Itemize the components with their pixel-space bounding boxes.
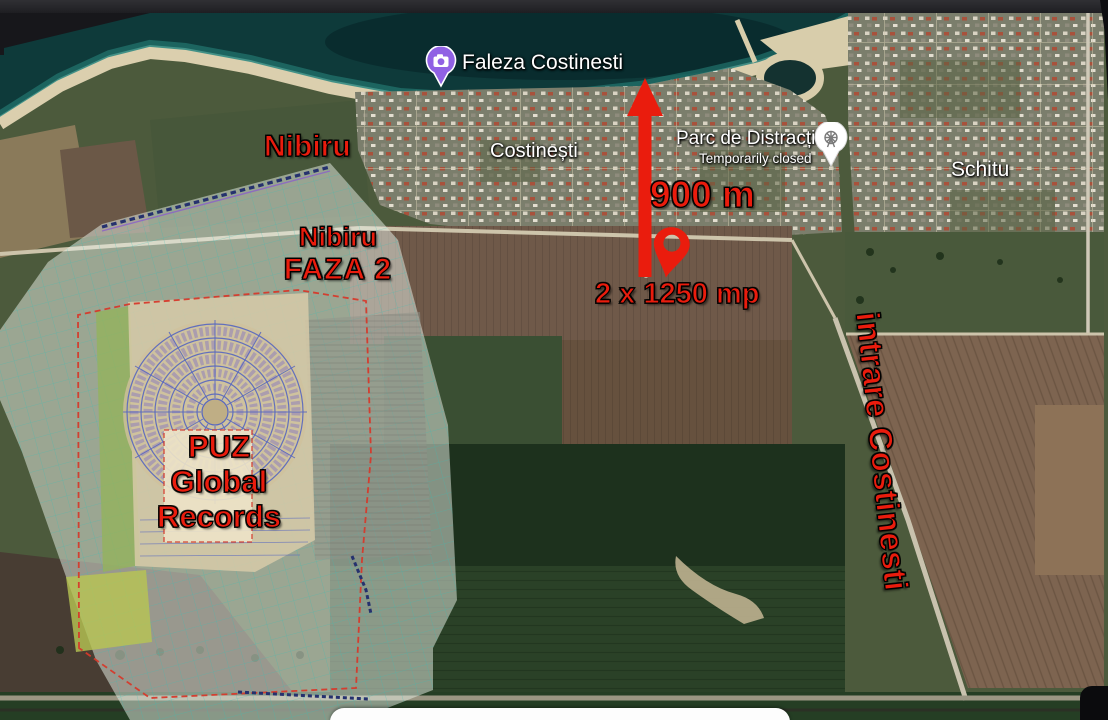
bottom-sheet-handle[interactable] <box>330 708 790 720</box>
parc-de-distractii-pin[interactable] <box>812 122 850 168</box>
top-frame-bar <box>0 0 1108 13</box>
satellite-map-canvas[interactable] <box>0 0 1108 720</box>
frame-bottom-right-corner <box>1080 686 1108 720</box>
map-screenshot: Faleza Costinesti Costinești Parc de Dis… <box>0 0 1108 720</box>
frame-left-edge <box>0 13 4 55</box>
faleza-costinesti-pin[interactable] <box>424 46 458 88</box>
